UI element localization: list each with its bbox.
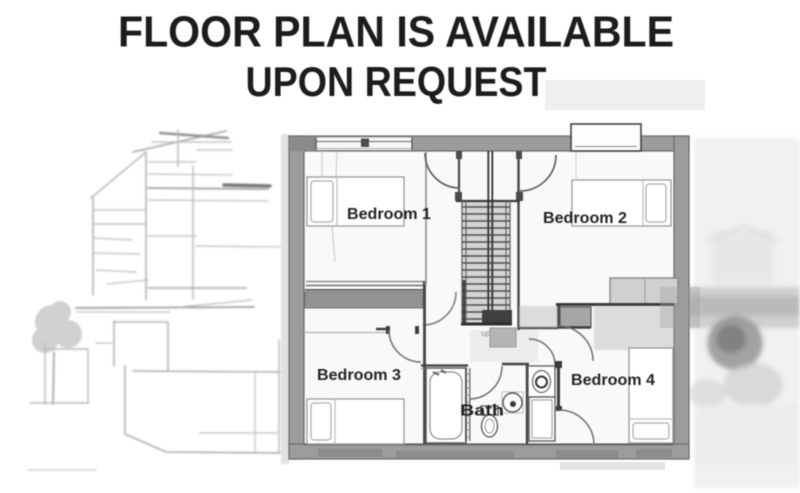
- svg-text:Bedroom 2: Bedroom 2: [543, 210, 627, 227]
- svg-text:Bath: Bath: [460, 403, 504, 420]
- svg-text:Bedroom 4: Bedroom 4: [571, 372, 655, 389]
- svg-text:FLOOR PLAN IS AVAILABLE: FLOOR PLAN IS AVAILABLE: [118, 8, 674, 57]
- svg-text:UPON REQUEST: UPON REQUEST: [246, 58, 547, 105]
- svg-text:Bedroom 3: Bedroom 3: [317, 367, 401, 384]
- svg-text:Bedroom 1: Bedroom 1: [347, 206, 431, 223]
